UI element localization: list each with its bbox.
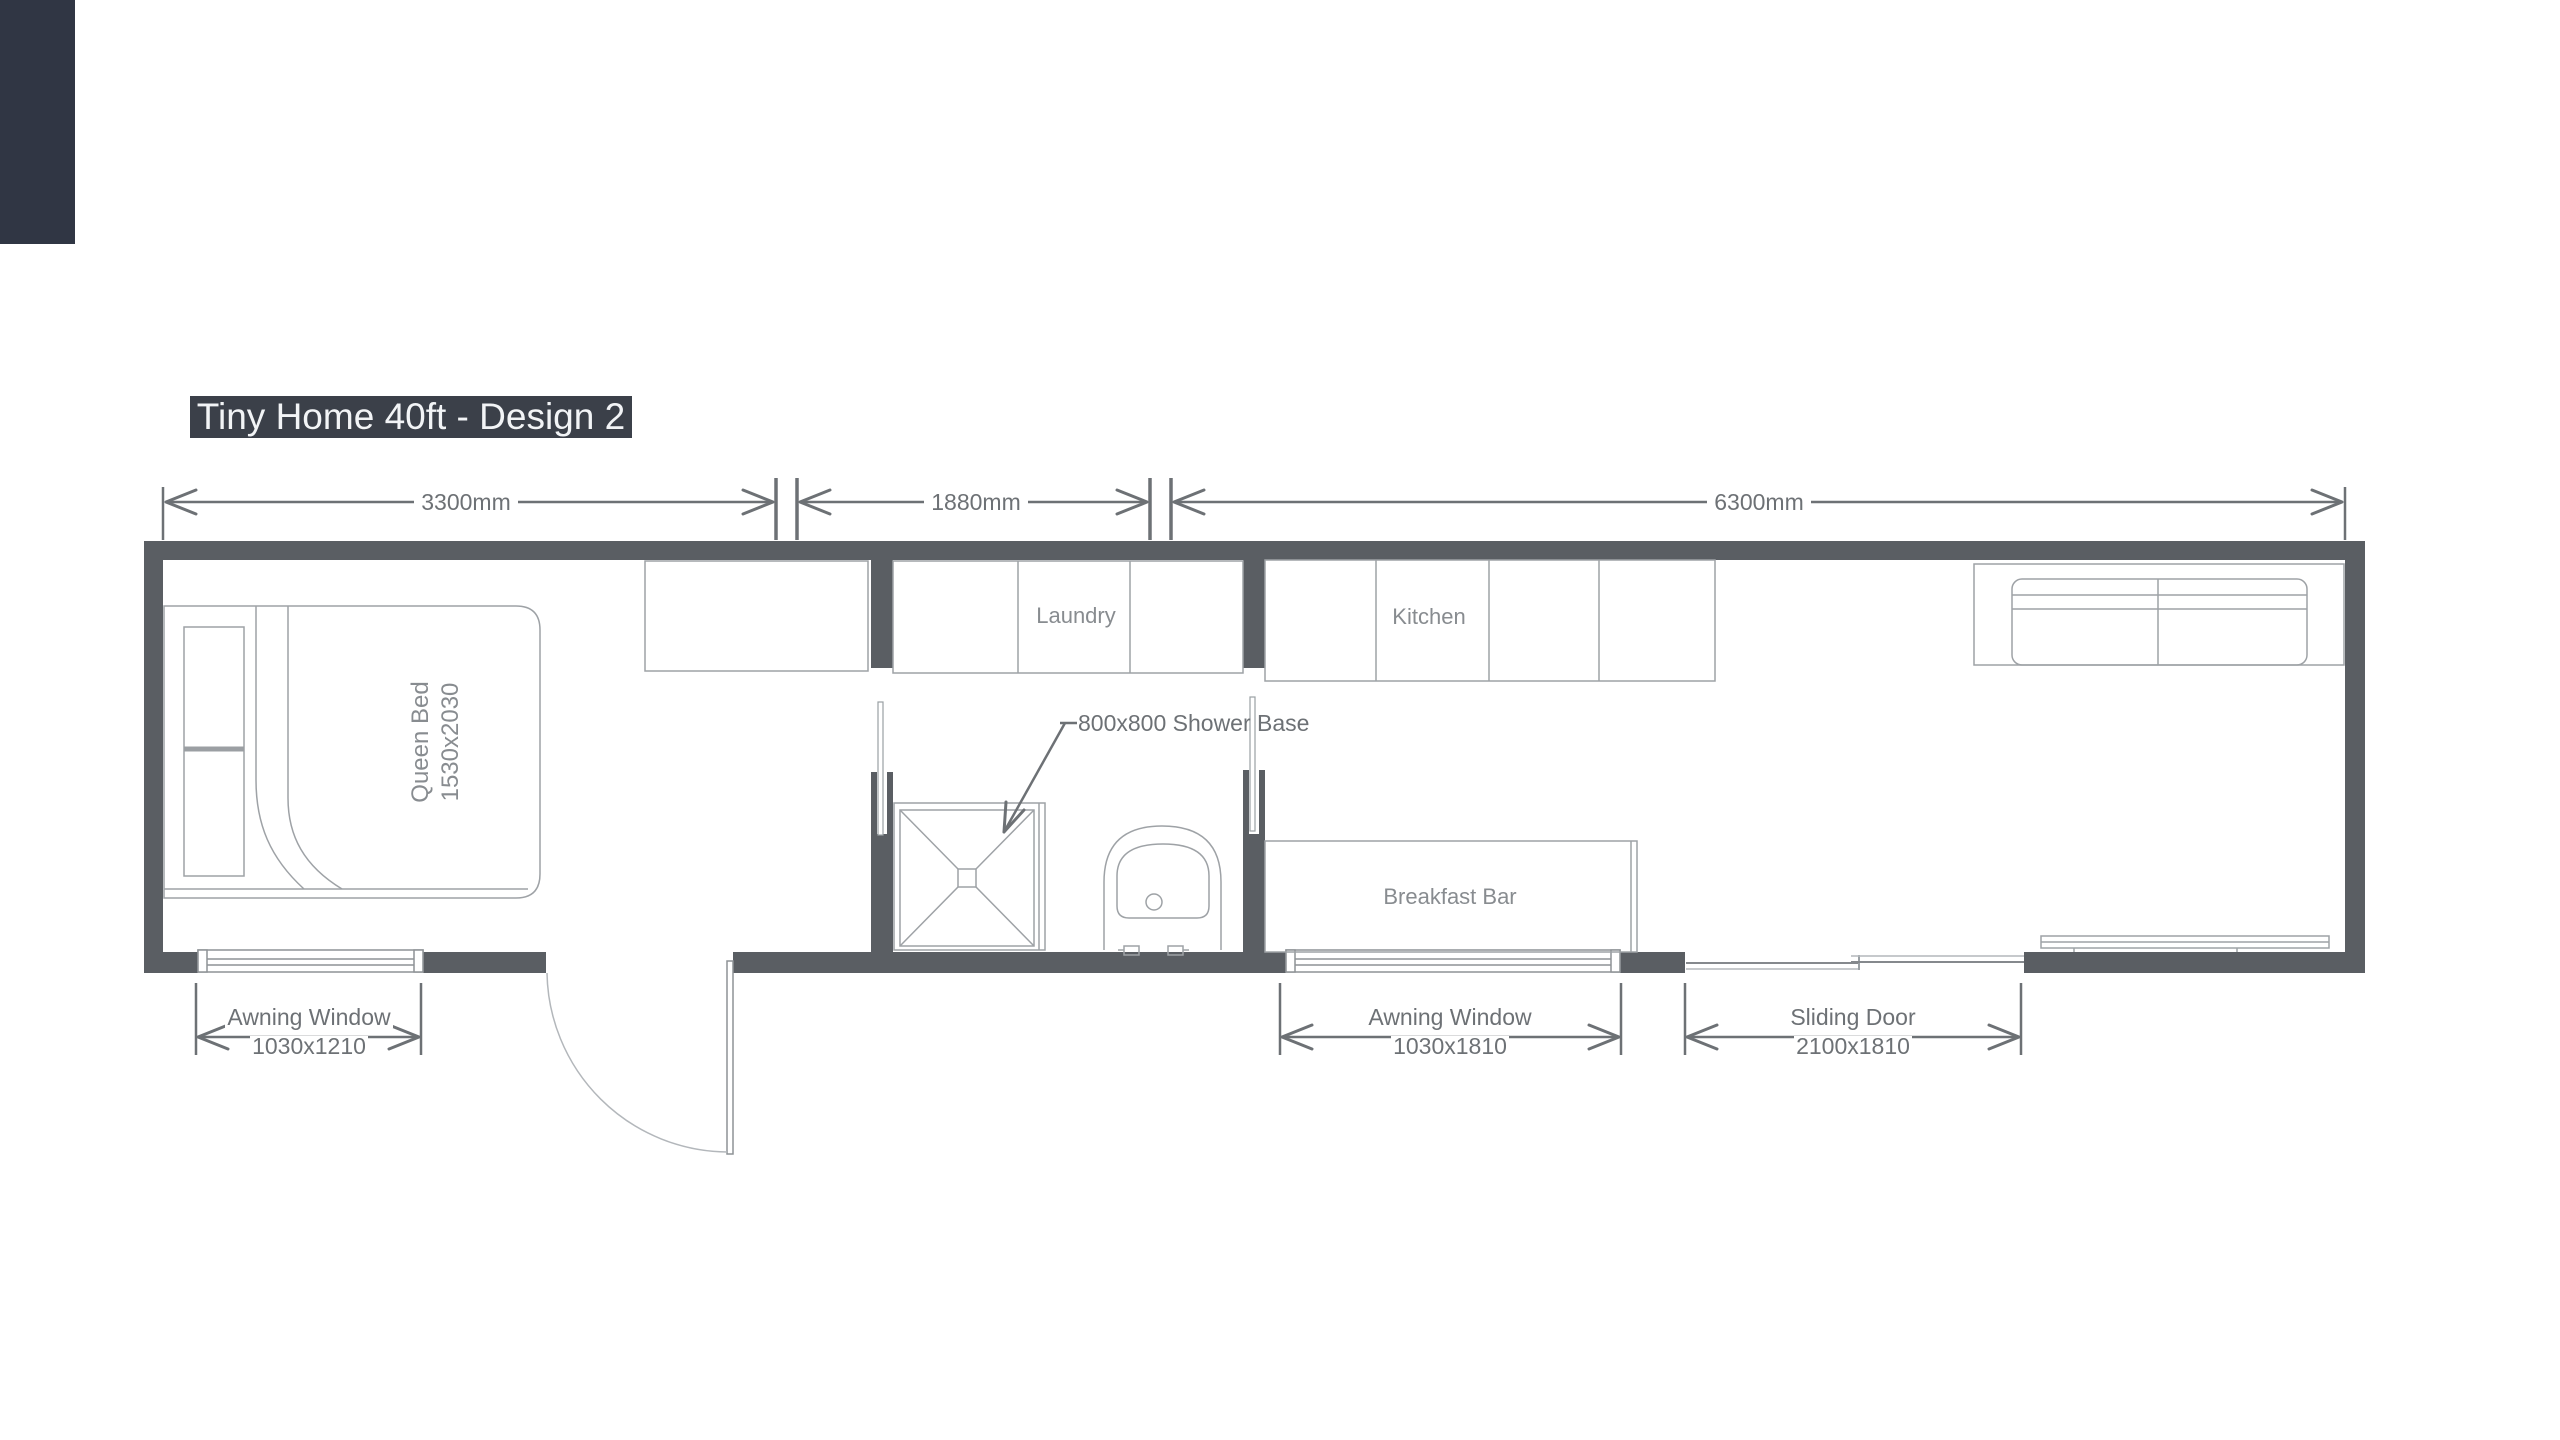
svg-text:Queen Bed: Queen Bed — [407, 681, 434, 802]
svg-text:2100x1810: 2100x1810 — [1796, 1033, 1910, 1059]
svg-text:Tiny Home 40ft - Design 2: Tiny Home 40ft - Design 2 — [197, 396, 625, 437]
svg-text:1030x1210: 1030x1210 — [252, 1033, 366, 1059]
svg-text:1530x2030: 1530x2030 — [437, 683, 464, 802]
svg-text:1030x1810: 1030x1810 — [1393, 1033, 1507, 1059]
svg-text:Awning Window: Awning Window — [1368, 1004, 1532, 1030]
svg-text:1880mm: 1880mm — [931, 489, 1020, 515]
svg-text:Kitchen: Kitchen — [1392, 604, 1465, 629]
svg-text:Laundry: Laundry — [1036, 603, 1116, 628]
svg-text:Awning Window: Awning Window — [227, 1004, 391, 1030]
svg-text:6300mm: 6300mm — [1714, 489, 1803, 515]
svg-text:Breakfast Bar: Breakfast Bar — [1383, 884, 1516, 909]
svg-text:Sliding Door: Sliding Door — [1790, 1004, 1916, 1030]
svg-text:800x800 Shower Base: 800x800 Shower Base — [1078, 710, 1309, 736]
svg-text:3300mm: 3300mm — [421, 489, 510, 515]
